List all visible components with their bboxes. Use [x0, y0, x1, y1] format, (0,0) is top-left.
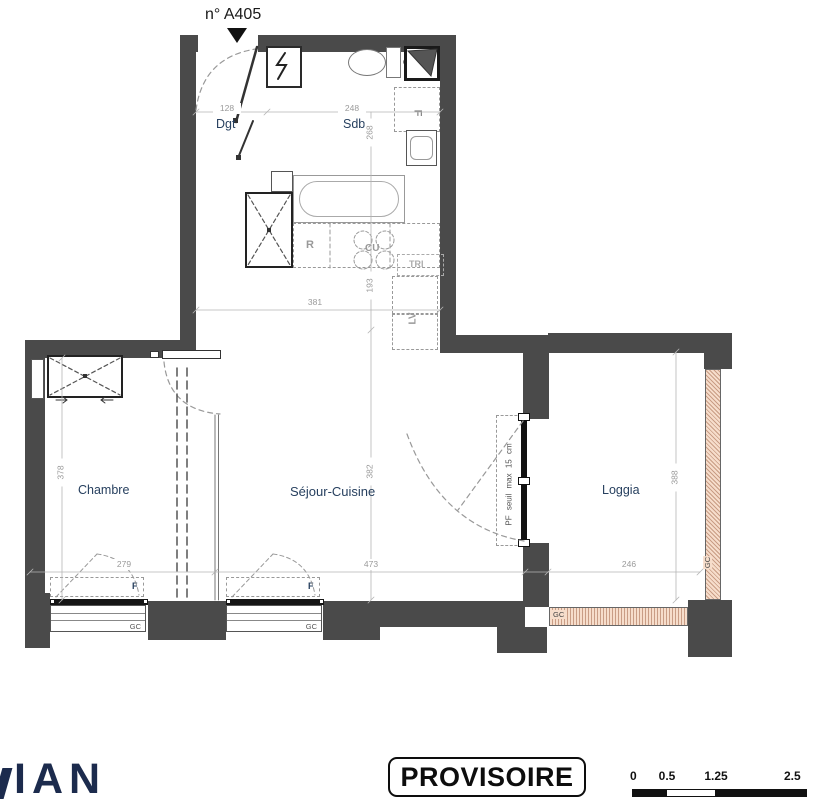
dim-chambre-width: 279 — [110, 559, 138, 570]
dim-chambre-depth: 378 — [56, 459, 67, 487]
lightning-bolt-icon — [277, 53, 286, 79]
room-label-sejour: Séjour-Cuisine — [290, 484, 375, 499]
room-label-sdb: Sdb — [343, 117, 365, 131]
door-hinge — [236, 155, 241, 160]
dim-upper-width: 381 — [301, 297, 329, 308]
window-swing-arc — [273, 554, 315, 595]
hob-burner — [376, 251, 394, 269]
shower-tray-symbol — [408, 49, 437, 76]
floor-plan-canvas: n° A405 GC GC F R CU TRI LV — [0, 0, 817, 800]
closet-cross-center — [83, 374, 87, 378]
window-swing-line — [232, 554, 273, 597]
closet-cross-center — [267, 228, 271, 232]
dim-sejour-depth: 382 — [365, 458, 376, 486]
hob-burner — [376, 231, 394, 249]
closet-slide-arrow — [101, 397, 113, 403]
dim-sdb-width: 248 — [338, 103, 366, 114]
linework-overlay — [0, 0, 817, 800]
room-label-loggia: Loggia — [602, 483, 640, 497]
sdb-door-leaf — [238, 121, 253, 158]
dim-kitchen-depth: 193 — [365, 272, 376, 300]
room-label-dgt: Dgt — [216, 117, 235, 131]
dim-sejour-width: 473 — [357, 559, 385, 570]
chambre-door-leaf — [162, 350, 221, 359]
hob-burner — [354, 251, 372, 269]
room-label-chambre: Chambre — [78, 483, 129, 497]
french-window-arc — [407, 434, 524, 541]
dim-entry-width: 128 — [213, 103, 241, 114]
hob-burner — [354, 231, 372, 249]
chambre-door-arc — [164, 362, 220, 414]
french-window-leaf-line — [458, 421, 523, 510]
dim-loggia-width: 246 — [615, 559, 643, 570]
chambre-door-hinge — [150, 351, 159, 358]
closet-slide-arrow — [56, 397, 67, 403]
dim-sdb-depth: 268 — [365, 119, 376, 147]
dim-loggia-depth: 388 — [670, 464, 681, 492]
